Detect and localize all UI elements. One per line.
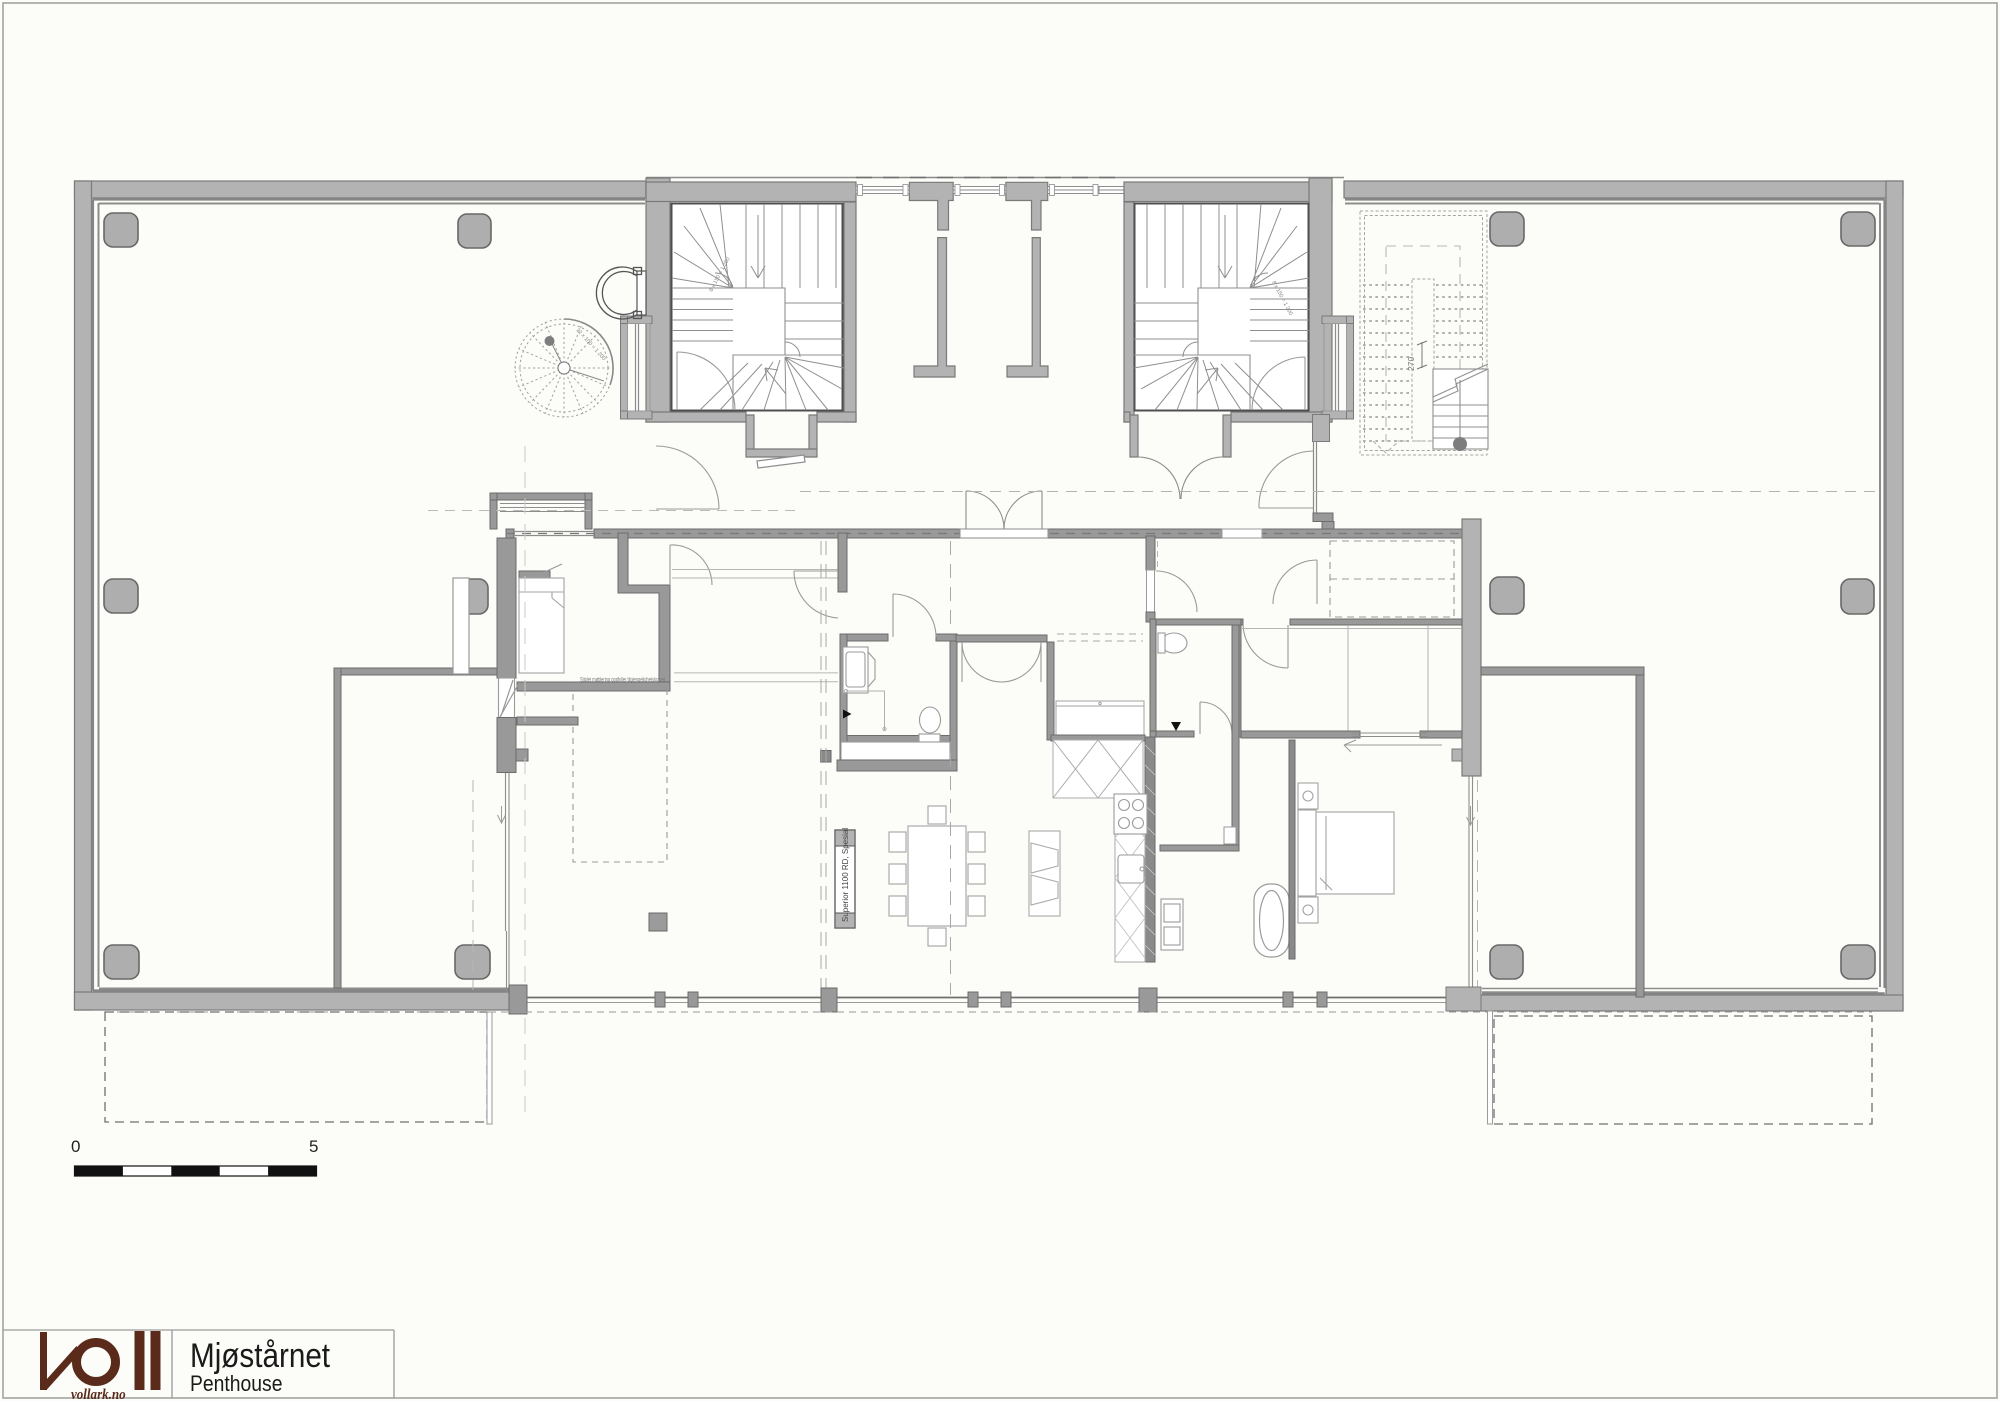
svg-text:Stiplet møblering oppfyller ti: Stiplet møblering oppfyller tilgjengelig… [580, 678, 665, 684]
svg-text:Mjøstårnet: Mjøstårnet [190, 1336, 330, 1375]
svg-text:Superior 1100 RD, Spesial: Superior 1100 RD, Spesial [841, 828, 850, 922]
svg-text:5: 5 [309, 1137, 318, 1156]
svg-text:vollark.no: vollark.no [71, 1386, 126, 1401]
svg-text:0: 0 [71, 1137, 80, 1156]
svg-text:270: 270 [1406, 357, 1416, 371]
svg-text:Penthouse: Penthouse [190, 1372, 282, 1397]
